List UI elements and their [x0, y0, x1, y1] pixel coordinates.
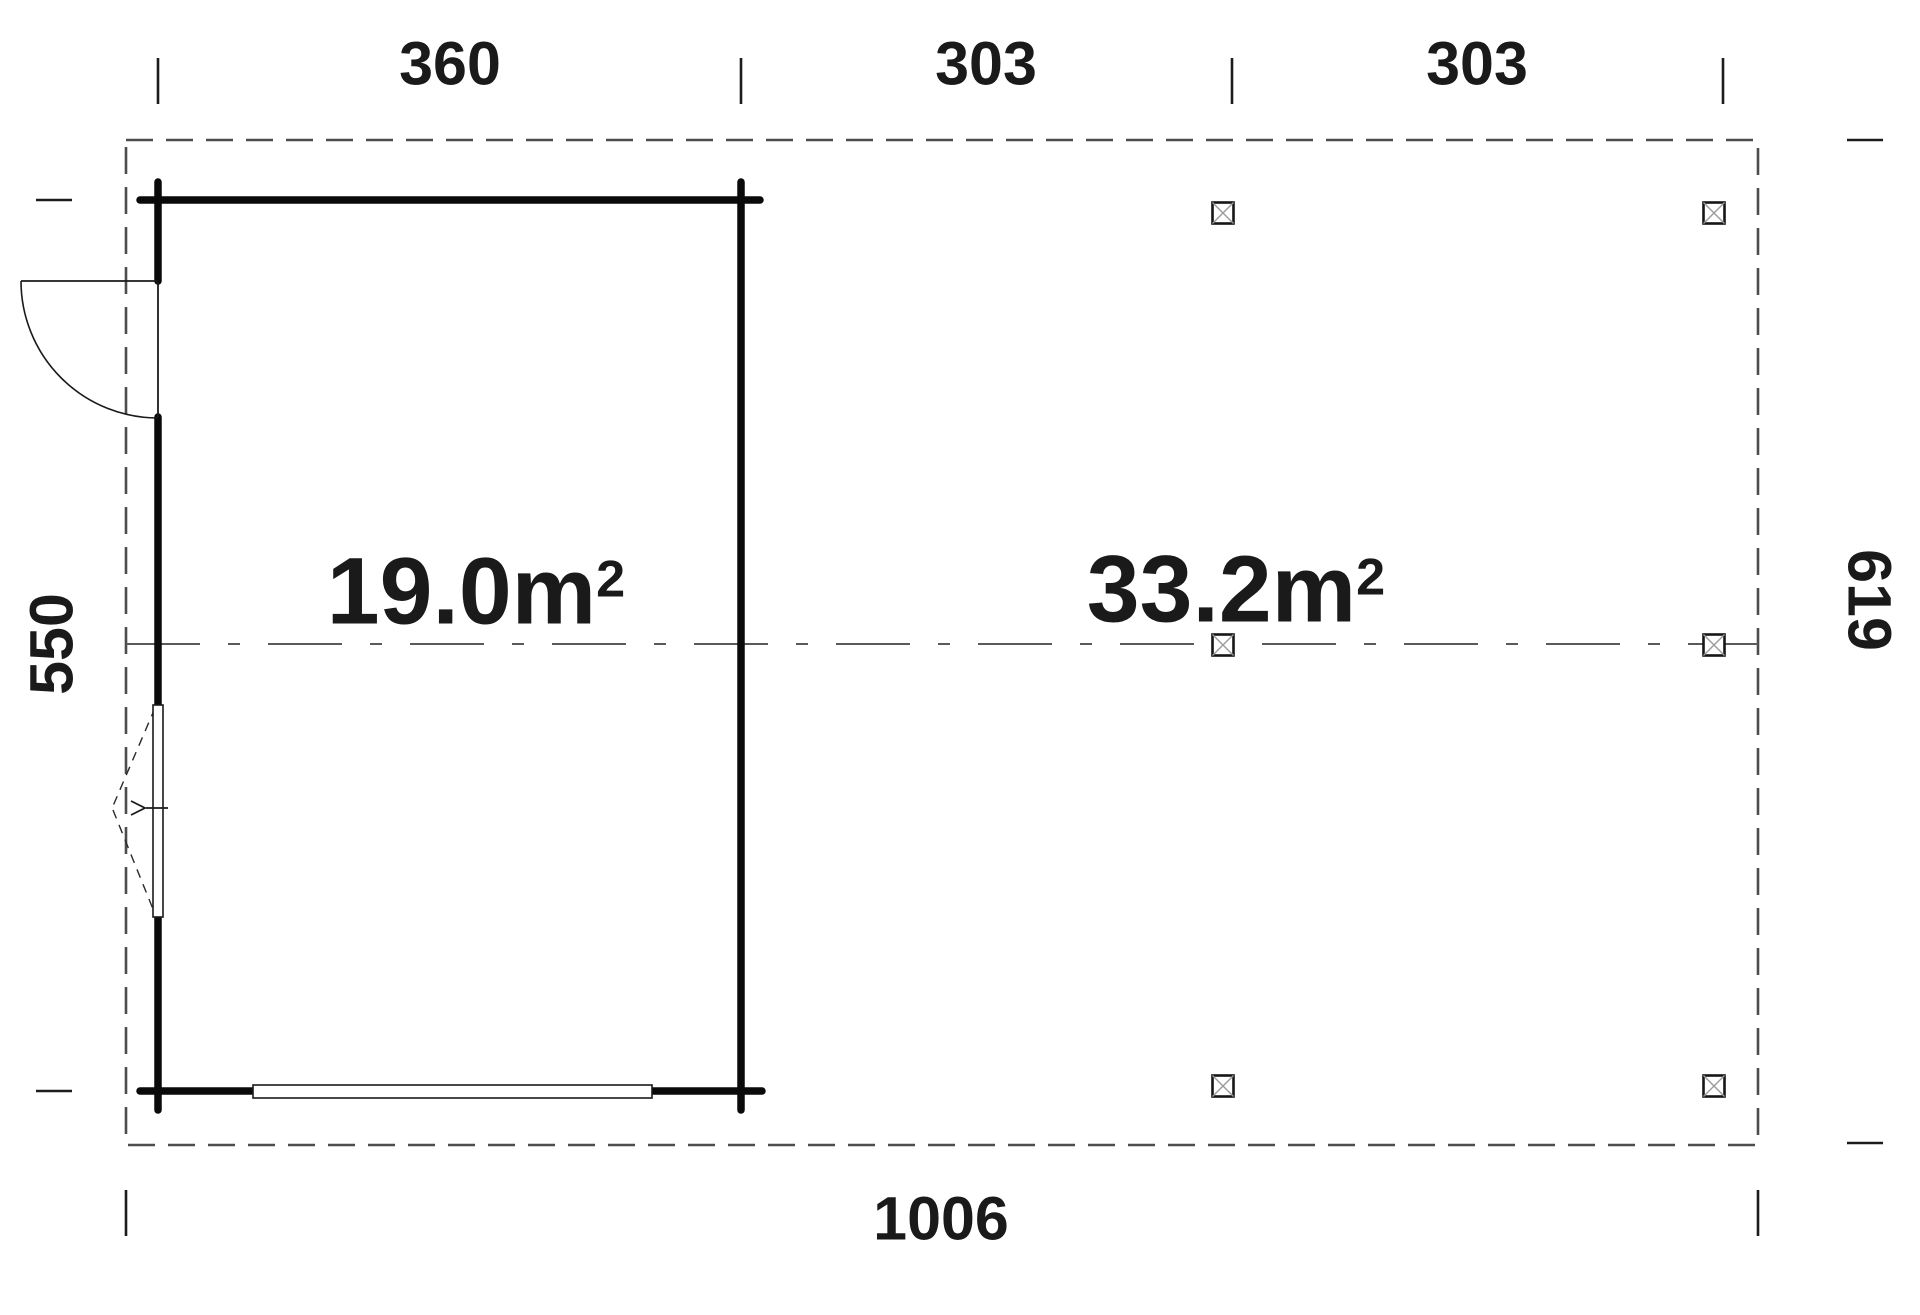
area-superscript: 2 [1356, 548, 1385, 606]
dimension-label-bottom: 1006 [873, 1189, 1009, 1250]
post-marker [1704, 203, 1725, 224]
side-window [113, 705, 168, 917]
dimension-label-top-middle: 303 [935, 34, 1037, 95]
entry-door-swing [21, 281, 158, 418]
area-label-room: 19.0m2 [327, 545, 625, 640]
area-superscript: 2 [596, 550, 625, 608]
dimension-ticks [36, 58, 1883, 1236]
post-marker [1704, 635, 1725, 656]
post-marker [1704, 1076, 1725, 1097]
front-window [253, 1085, 652, 1098]
dimension-label-top-left: 360 [399, 34, 501, 95]
dimension-label-top-right: 303 [1426, 34, 1528, 95]
post-marker [1213, 203, 1234, 224]
room-walls [140, 182, 762, 1110]
dimension-label-right: 619 [1839, 549, 1900, 651]
post-marker [1213, 1076, 1234, 1097]
plan-linework [0, 0, 1920, 1315]
dimension-label-left: 550 [22, 593, 83, 695]
floor-plan: 360 303 303 550 619 1006 19.0m2 33.2m2 [0, 0, 1920, 1315]
area-value: 19.0m [327, 539, 596, 645]
area-value: 33.2m [1087, 537, 1356, 643]
area-label-carport: 33.2m2 [1087, 543, 1385, 638]
